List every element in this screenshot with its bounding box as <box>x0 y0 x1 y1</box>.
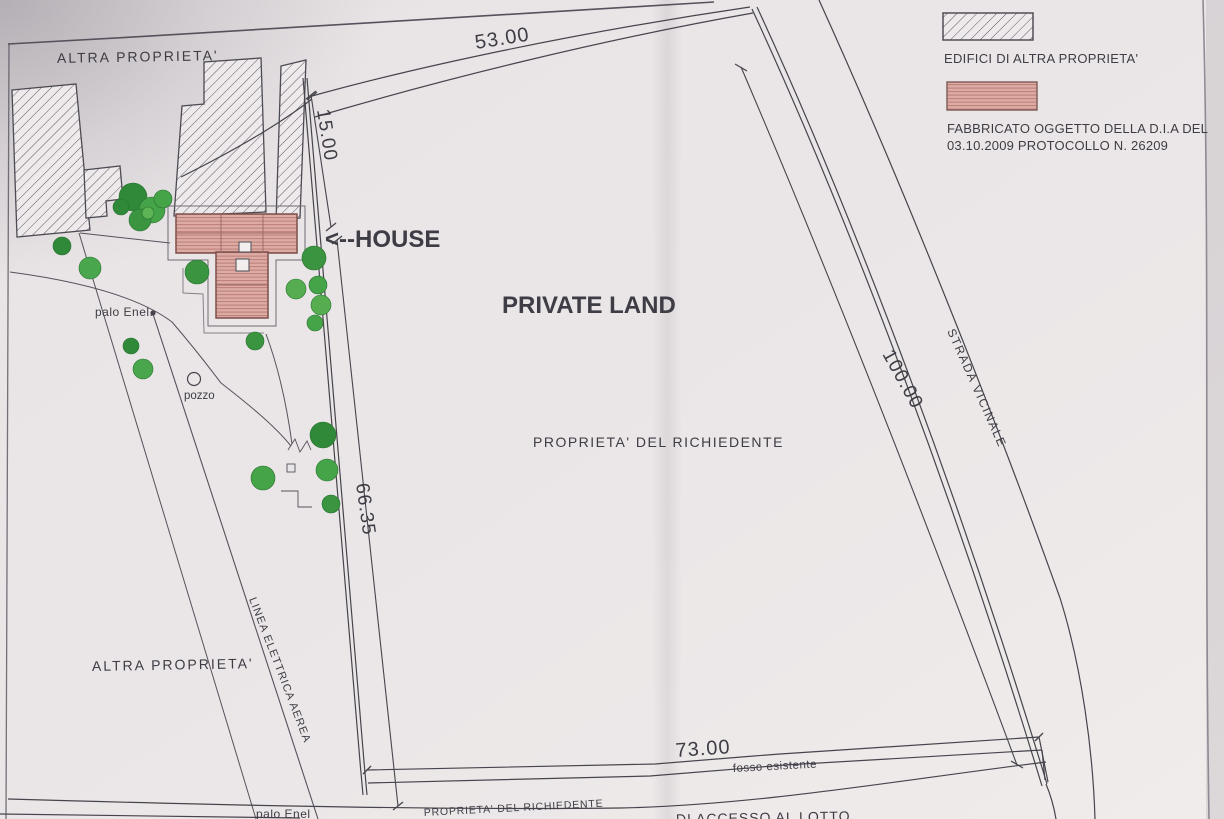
paper-fold-right-shade <box>1206 0 1224 819</box>
label-accesso-lotto-partial: DI ACCESSO AL LOTTO <box>676 808 851 819</box>
legend-edifici-label: EDIFICI DI ALTRA PROPRIETA' <box>944 51 1138 66</box>
tree <box>316 459 338 481</box>
tree <box>113 199 129 215</box>
tree <box>123 338 139 354</box>
label-altra-proprieta-top: ALTRA PROPRIETA' <box>57 47 219 66</box>
label-proprieta-richiedente-center: PROPRIETA' DEL RICHIEDENTE <box>533 434 784 450</box>
tree <box>310 422 336 448</box>
annotation-private-land: PRIVATE LAND <box>502 292 676 319</box>
house-upper-wing <box>176 214 297 253</box>
chimney <box>236 259 249 271</box>
tree <box>53 237 71 255</box>
chimney <box>239 242 251 252</box>
tree <box>79 257 101 279</box>
tree <box>133 359 153 379</box>
label-palo-enel-top: palo Enel. <box>95 305 153 319</box>
site-plan-scan: ALTRA PROPRIETA' ALTRA PROPRIETA' 53.00 … <box>0 0 1224 819</box>
tree <box>154 190 172 208</box>
tree <box>307 315 323 331</box>
legend-pink-swatch <box>947 82 1037 110</box>
label-altra-proprieta-bottom: ALTRA PROPRIETA' <box>92 655 254 674</box>
neighbour-building <box>12 84 90 237</box>
paper-fold-crease <box>652 0 682 819</box>
annotation-house-arrow: <--HOUSE <box>325 226 440 253</box>
legend-fabbricato-line1: FABBRICATO OGGETTO DELLA D.I.A DEL <box>947 121 1208 136</box>
legend-fabbricato-line2: 03.10.2009 PROTOCOLLO N. 26209 <box>947 138 1168 153</box>
plan-drawing: ALTRA PROPRIETA' ALTRA PROPRIETA' 53.00 … <box>0 0 1224 819</box>
label-pozzo: pozzo <box>184 390 215 402</box>
tree <box>185 260 209 284</box>
tree <box>251 466 275 490</box>
tree <box>302 246 326 270</box>
tree <box>246 332 264 350</box>
tree <box>309 276 327 294</box>
tree <box>286 279 306 299</box>
tree <box>311 295 331 315</box>
legend-hatched-swatch <box>943 13 1033 40</box>
tree <box>322 495 340 513</box>
dimension-73: 73.00 <box>675 736 731 762</box>
label-palo-enel-bottom: palo Enel <box>256 807 311 819</box>
tree <box>142 207 154 219</box>
